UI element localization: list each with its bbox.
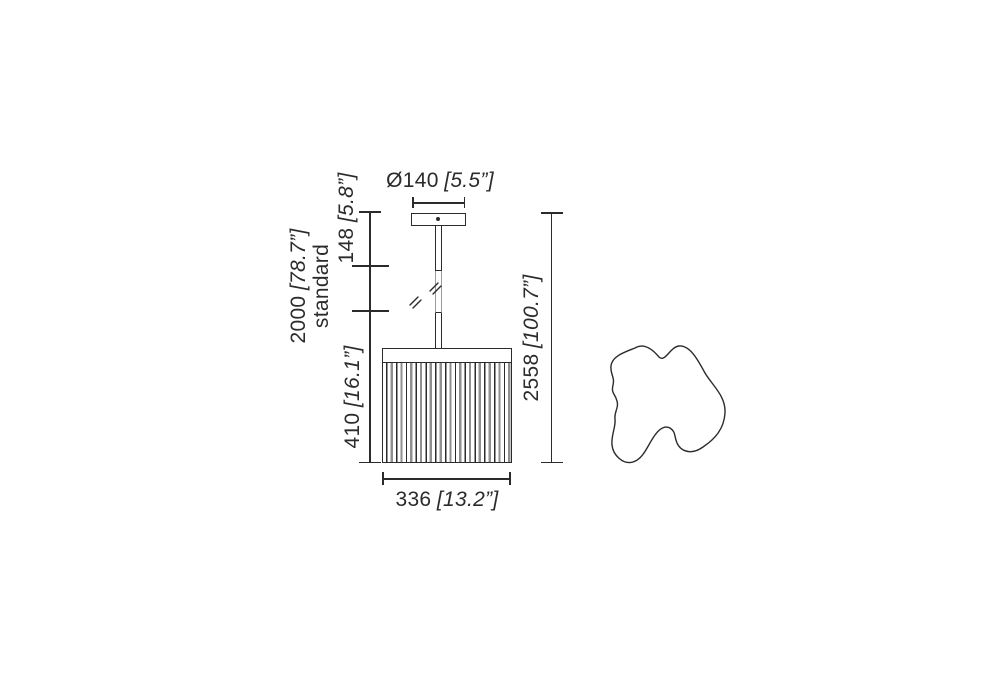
overall-height-inches: [100.7”]: [520, 275, 543, 349]
dim-line-right: [551, 213, 553, 463]
dim-tick-width-left: [382, 472, 384, 485]
shade-width-inches: [13.2”]: [437, 488, 499, 511]
stem-lower-section: [435, 313, 442, 348]
dim-crosstick-148: [352, 265, 389, 267]
pendant-lamp-dimension-drawing: Ø140[5.5”] 148[5.8”] 2000[78.7”] standar…: [0, 0, 1000, 700]
suspension-length-label: 2000[78.7”] standard: [287, 228, 333, 343]
stem-break-marks-icon: [403, 272, 463, 317]
canopy-drop-value: 148: [335, 228, 358, 264]
canopy-drop-inches: [5.8”]: [335, 172, 358, 222]
dim-endbar-left-top: [359, 211, 381, 213]
shade-height-value: 410: [341, 413, 364, 449]
canopy-diameter-inches: [5.5”]: [444, 169, 494, 192]
overall-height-label: 2558[100.7”]: [520, 275, 544, 402]
shade-width-value: 336: [395, 488, 431, 511]
suspension-length-note: standard: [310, 228, 333, 343]
suspension-length-inches: [78.7”]: [287, 228, 310, 290]
dim-line-canopy-diameter: [413, 202, 465, 204]
canopy-diameter-value: Ø140: [386, 169, 439, 192]
shade-pleats: [382, 363, 512, 463]
shade-top-band: [382, 348, 512, 363]
dim-endbar-left-bottom: [359, 462, 381, 464]
dim-tick-canopy-left: [412, 197, 414, 208]
dim-endbar-right-bottom: [541, 462, 563, 464]
shade-height-label: 410[16.1”]: [341, 345, 365, 448]
dim-line-shade-width: [383, 478, 511, 480]
canopy-diameter-label: Ø140[5.5”]: [386, 169, 494, 193]
suspension-length-line1: 2000[78.7”]: [287, 228, 310, 343]
dim-endbar-right-top: [541, 212, 563, 214]
dim-tick-canopy-right: [464, 197, 466, 208]
shade-height-inches: [16.1”]: [341, 345, 364, 407]
dim-tick-width-right: [509, 472, 511, 485]
shade-width-label: 336[13.2”]: [395, 488, 498, 512]
overall-height-value: 2558: [520, 354, 543, 402]
ceiling-canopy: [411, 213, 466, 226]
stem-upper-section: [435, 226, 442, 271]
dim-crosstick-2000: [352, 310, 389, 312]
dim-line-left: [369, 212, 371, 463]
canopy-screw-dot: [436, 217, 440, 221]
shade-plan-outline: [595, 335, 745, 480]
suspension-length-value: 2000: [287, 296, 310, 344]
canopy-drop-label: 148[5.8”]: [335, 172, 359, 263]
